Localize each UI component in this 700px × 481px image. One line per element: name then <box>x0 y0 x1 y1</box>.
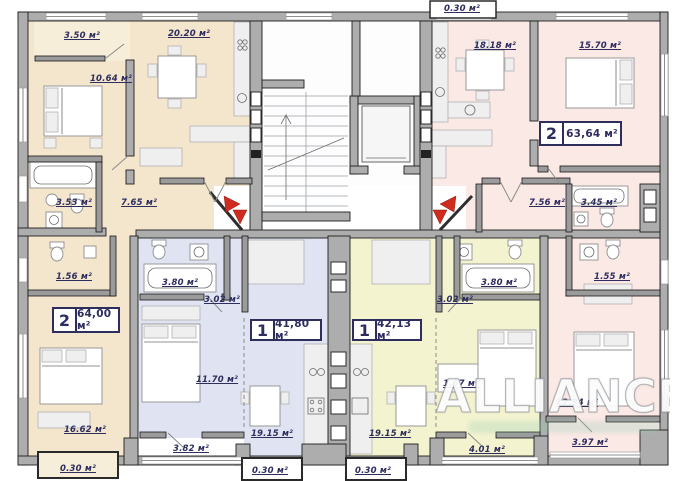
dresser-icon <box>142 306 200 320</box>
apartment-total-area: 41,80 м² <box>275 321 320 339</box>
floor-plan: 3.50 м² 20.20 м² 0.30 м² 18.18 м² 15.70 … <box>0 0 700 481</box>
bed-icon <box>478 330 536 406</box>
room-area-label: 16.62 м² <box>64 425 106 435</box>
bed-icon <box>574 332 634 406</box>
room-area-label: 12.94 м² <box>556 398 598 408</box>
sink-icon <box>84 246 96 258</box>
room-area-label: 3.82 м² <box>173 444 209 454</box>
apartment-rooms-count: 2 <box>541 123 564 144</box>
room-area-label: 0.30 м² <box>252 466 288 476</box>
room-area-label: 18.18 м² <box>474 41 516 51</box>
watermark-subline <box>468 421 660 433</box>
bathtub-icon <box>30 162 96 188</box>
room-area-label: 3.97 м² <box>572 438 608 448</box>
toilet-icon <box>600 208 614 227</box>
sink-icon <box>580 244 598 260</box>
toilet-icon <box>50 242 64 261</box>
toilet-icon <box>152 240 166 259</box>
sink-icon <box>190 244 208 260</box>
room-area-label: 4.01 м² <box>469 445 505 455</box>
room-area-label: 3.02 м² <box>437 295 473 305</box>
room-area-label: 3.45 м² <box>581 198 617 208</box>
bed-icon <box>44 86 102 136</box>
washer-icon <box>46 212 62 228</box>
apartment-badge: 1 42,13 м² <box>352 319 422 341</box>
room-area-label: 1.56 м² <box>56 272 92 282</box>
room-area-label: 0.30 м² <box>444 4 480 14</box>
room-area-label: 10.64 м² <box>90 74 132 84</box>
room-area-label: 0.30 м² <box>60 464 96 474</box>
apartment-badge: 2 64,00 м² <box>52 307 120 333</box>
bed-icon <box>40 348 102 404</box>
toilet-icon <box>508 240 522 259</box>
room-area-label: 3.80 м² <box>162 278 198 288</box>
room-area-label: 19.15 м² <box>369 429 411 439</box>
room-area-label: 7.65 м² <box>121 198 157 208</box>
apartment-rooms-count: 1 <box>354 321 377 339</box>
apartment-badge: 2 63,64 м² <box>539 121 622 146</box>
apartment-rooms-count: 1 <box>252 321 275 339</box>
apartment-total-area: 63,64 м² <box>564 123 620 144</box>
bed-icon <box>142 324 200 402</box>
dresser-icon <box>140 148 182 166</box>
kitchen-counter-icon <box>234 22 250 116</box>
sofa-icon <box>372 240 430 284</box>
bed-icon <box>566 58 634 108</box>
washer-icon <box>574 212 588 226</box>
sofa-icon <box>246 240 304 284</box>
room-area-label: 3.02 м² <box>204 295 240 305</box>
apartment-total-area: 42,13 м² <box>377 321 420 339</box>
room-area-label: 3.50 м² <box>64 31 100 41</box>
room-area-label: 3.53 м² <box>56 198 92 208</box>
room-area-label: 11.70 м² <box>196 375 238 385</box>
room-area-label: 15.70 м² <box>579 41 621 51</box>
floor-plan-drawing <box>0 0 700 481</box>
room-area-label: 0.30 м² <box>355 466 391 476</box>
toilet-icon <box>606 240 620 259</box>
room-area-label: 1.55 м² <box>594 272 630 282</box>
room-area-label: 3.80 м² <box>481 278 517 288</box>
room-area-label: 1.67 м² <box>443 379 479 389</box>
apartment-rooms-count: 2 <box>54 309 77 331</box>
room-area-label: 7.56 м² <box>529 198 565 208</box>
apartment-total-area: 64,00 м² <box>77 309 118 331</box>
apartment-badge: 1 41,80 м² <box>250 319 322 341</box>
room-area-label: 20.20 м² <box>168 29 210 39</box>
room-area-label: 19.15 м² <box>251 429 293 439</box>
kitchen-counter-icon <box>304 344 328 454</box>
